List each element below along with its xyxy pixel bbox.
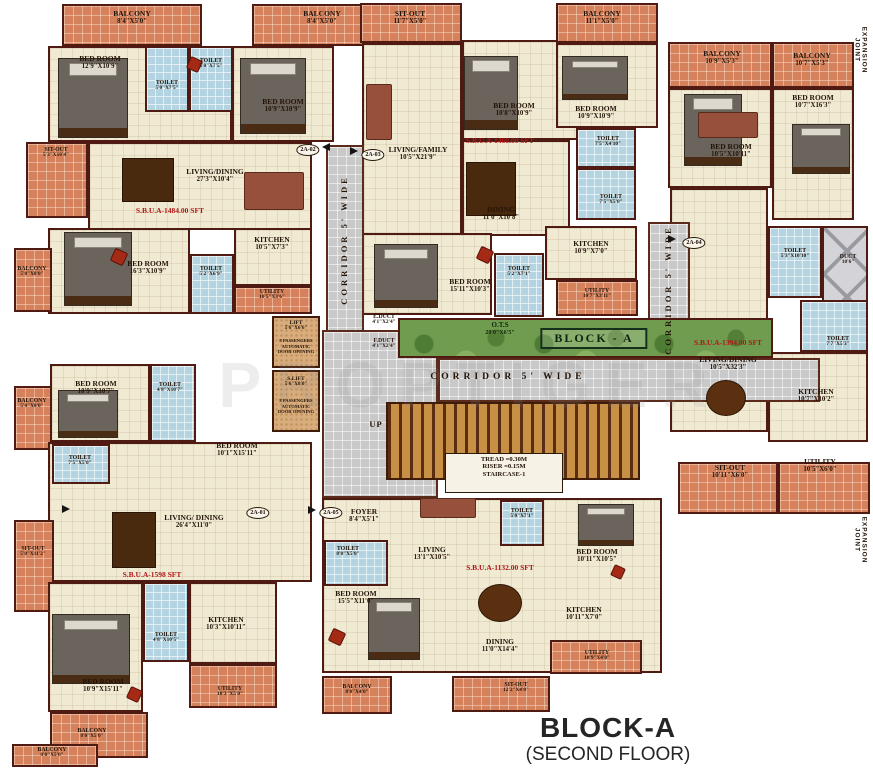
label-bedroom-105x1011: BED ROOM10'5"X10'11" — [710, 143, 751, 159]
label-living-family-2a03-line-2: 10'5"X21'9" — [389, 154, 448, 162]
label-kitchen-2a04: KITCHEN10'7"X10'2" — [798, 388, 835, 404]
label-balcony-2a04-1-line-2: 10'9"X5'3" — [703, 58, 741, 66]
floorplan-block-a: PROPTIGER BLOCK-A (SECOND FLOOR) BALCONY… — [0, 0, 873, 768]
label-utility-2a04: UTILITY10'5"X6'0" — [803, 458, 836, 474]
label-balcony-left-2-line-2: 5'0"X8'0" — [18, 404, 47, 410]
label-bedroom-129x109-line-1: BED ROOM — [79, 55, 120, 63]
label-balcony-bl-2-line-2: 8'0"X5'0" — [38, 753, 67, 759]
label-dining-2a03: DINING11'0"X10'8" — [483, 206, 519, 222]
label-duct-106-line-2: 10'6" — [840, 260, 856, 266]
label-foyer-line-1: FOYER — [349, 508, 379, 516]
label-sitout-122x40-line-2: 12'2"X4'0" — [503, 688, 529, 694]
label-kitchen-2a02: KITCHEN10'5"X7'3" — [254, 236, 289, 252]
label-ots-line-2: 28'0"X6'5" — [485, 330, 514, 337]
label-ots: O.T.S28'0"X6'5" — [485, 322, 514, 337]
label-balcony-bl-1-line-2: 8'0"X5'0" — [78, 734, 107, 740]
label-dining-2a05-line-2: 11'0"X14'4" — [482, 646, 518, 654]
label-stair-info-line-2: RISER =0.15M — [481, 463, 527, 470]
label-balcony-tl-2-line-2: 8'4"X5'0" — [303, 18, 341, 26]
label-dining-2a05-line-1: DINING — [482, 638, 518, 646]
label-dining-2a03-line-1: DINING — [483, 206, 519, 214]
label-kitchen-2a03-line-2: 10'9"X7'0" — [573, 248, 608, 256]
label-toilet-48x105: TOILET4'8"X10'5" — [153, 632, 179, 644]
label-toilet-75x50-c-line-2: 7'5"X5'0" — [599, 200, 622, 206]
label-sitout-1011x60-line-1: SIT-OUT — [712, 464, 748, 472]
label-lift-1: LIFT5'6"X6'6" — [285, 320, 308, 332]
label-sitout-117x50-line-2: 11'7"X5'0" — [394, 18, 427, 26]
label-toilet-50x75-a-line-2: 5'0"X7'5" — [155, 86, 178, 92]
label-sitout-50x112: SIT-OUT5'0"X11'2" — [20, 546, 46, 558]
label-toilet-77x53: TOILET7'7"X5'3" — [826, 336, 849, 348]
label-balcony-tl-1: BALCONY8'4"X5'0" — [113, 10, 151, 26]
zone-toilet-52x71 — [494, 253, 544, 317]
label-toilet-75x50-2a01: TOILET7'5"X5'0" — [68, 455, 91, 467]
entry-arrow-icon — [62, 505, 70, 513]
label-utility-2a04-line-2: 10'5"X6'0" — [803, 466, 836, 474]
label-bedroom-105x1011-line-2: 10'5"X10'11" — [710, 151, 751, 159]
label-toilet-50x75-b-line-2: 5'0"X7'5" — [199, 64, 222, 70]
label-balcony-2a04-2-line-2: 10'7"X5'3" — [793, 60, 831, 68]
label-bedroom-155x110-line-2: 15'5"X11'0" — [335, 598, 376, 606]
unit-badge-2a-02: 2A-02 — [296, 144, 319, 156]
label-foyer-line-2: 8'4"X5'1" — [349, 516, 379, 524]
label-block-a-box-line-1: BLOCK - A — [540, 328, 647, 349]
label-sbua-2a04-line-1: S.B.U.A-1394.00 SFT — [694, 339, 762, 347]
label-sitout-53x104-line-2: 5'3"X10'4" — [43, 153, 69, 159]
label-up-line-1: UP — [369, 420, 382, 430]
label-sitout-50x112-line-2: 5'0"X11'2" — [20, 552, 46, 558]
label-kitchen-2a01: KITCHEN10'3"X10'11" — [206, 616, 246, 632]
zone-balcony-left-2 — [14, 386, 52, 450]
label-expansion-joint-top-line-2: JOINT — [853, 27, 860, 74]
label-living-family-2a03-line-1: LIVING/FAMILY — [389, 146, 448, 154]
label-bedroom-107x163-line-1: BED ROOM — [792, 94, 833, 102]
furniture-round — [478, 584, 522, 622]
furniture-bed — [374, 244, 438, 308]
label-educt: E.DUCT4'1"X2'4" — [372, 314, 395, 326]
label-kitchen-2a01-line-1: KITCHEN — [206, 616, 246, 624]
label-lift-2-sub: 8 PASSENGERSAUTOMATICDOOR OPENING — [278, 398, 314, 415]
label-bedroom-101x1511-line-1: BED ROOM — [216, 442, 257, 450]
label-kitchen-2a04-line-1: KITCHEN — [798, 388, 835, 396]
label-bedroom-109x109-tr-line-1: BED ROOM — [575, 105, 616, 113]
label-bedroom-155x110: BED ROOM15'5"X11'0" — [335, 590, 376, 606]
label-toilet-48x105-line-2: 4'8"X10'5" — [153, 638, 179, 644]
label-balcony-left-1: BALCONY5'0"X8'0" — [18, 266, 47, 278]
drawing-title: BLOCK-A (SECOND FLOOR) — [526, 712, 691, 766]
label-utility-2a03-line-2: 10'7"X3'11" — [583, 294, 611, 300]
label-foyer: FOYER8'4"X5'1" — [349, 508, 379, 524]
label-bedroom-109x109-tr-line-2: 10'9"X10'9" — [575, 113, 616, 121]
furniture-sofa — [366, 84, 392, 140]
label-living-2a02-line-2: 27'3"X10'4" — [186, 176, 244, 184]
label-bedroom-109x1511-line-1: BED ROOM — [82, 678, 123, 686]
label-living-2a04-line-1: LIVING/DINING — [699, 356, 757, 364]
label-sbua-2a01-line-1: S.B.U.A-1598 SFT — [123, 571, 182, 579]
label-sitout-1011x60-line-2: 10'11"X6'0" — [712, 472, 748, 480]
label-lift-2-sub-line-3: DOOR OPENING — [278, 409, 314, 415]
label-bedroom-163x109: BED ROOM16'3"X10'9" — [127, 260, 168, 276]
label-living-2a01-line-1: LIVING/ DINING — [164, 514, 223, 522]
label-bedroom-129x109-line-2: 12'9"X10'9" — [79, 63, 120, 71]
label-toilet-48x107-line-2: 4'8"X10'7" — [157, 388, 183, 394]
label-expansion-joint-top: EXPANSIONJOINT — [853, 27, 868, 74]
label-sbua-1132: S.B.U.A-1132.00 SFT — [466, 564, 534, 572]
label-bedroom-1011x105-line-2: 10'11"X10'5" — [576, 556, 617, 564]
label-bedroom-108x109-line-1: BED ROOM — [493, 102, 534, 110]
label-lift-2-sub-line-1: 8 PASSENGERS — [278, 398, 314, 404]
label-toilet-50x75-a: TOILET5'0"X7'5" — [155, 80, 178, 92]
label-bedroom-109x109-tr: BED ROOM10'9"X10'9" — [575, 105, 616, 121]
label-bedroom-101x1511-line-2: 10'1"X15'11" — [216, 450, 257, 458]
zone-sitout-122x40 — [452, 676, 550, 712]
label-kitchen-2a03: KITCHEN10'9"X7'0" — [573, 240, 608, 256]
label-balcony-tl-1-line-2: 8'4"X5'0" — [113, 18, 151, 26]
label-corridor-left-line-1: CORRIDOR 5' WIDE — [340, 175, 350, 305]
label-stair-info: TREAD =0.30MRISER =0.15MSTAIRCASE-1 — [481, 456, 527, 478]
label-sbua-2a02-line-1: S.B.U.A-1484.00 SFT — [136, 207, 204, 215]
label-lift-1-sub: 8 PASSENGERSAUTOMATICDOOR OPENING — [278, 338, 314, 355]
label-bedroom-108x109: BED ROOM10'8"X10'9" — [493, 102, 534, 118]
label-bedroom-1511x103: BED ROOM15'11"X10'3" — [449, 278, 490, 294]
label-kitchen-2a05-line-1: KITCHEN — [566, 606, 602, 614]
label-toilet-48x107: TOILET4'8"X10'7" — [157, 382, 183, 394]
zone-balcony-left-1 — [14, 248, 52, 312]
furniture-bed — [562, 56, 628, 100]
zone-toilet-50x75-b — [189, 46, 233, 112]
label-dining-2a03-line-2: 11'0"X10'8" — [483, 214, 519, 222]
label-balcony-2a04-2-line-1: BALCONY — [793, 52, 831, 60]
label-sbua-2a04: S.B.U.A-1394.00 SFT — [694, 339, 762, 347]
label-balcony-left-1-line-2: 5'0"X8'0" — [18, 272, 47, 278]
label-ots-line-1: O.T.S — [485, 322, 514, 330]
label-dining-2a05: DINING11'0"X14'4" — [482, 638, 518, 654]
label-balcony-2a04-2: BALCONY10'7"X5'3" — [793, 52, 831, 68]
label-toilet-80x50-line-2: 8'0"X5'0" — [336, 552, 359, 558]
label-sitout-53x104: SIT-OUT5'3"X10'4" — [43, 147, 69, 159]
furniture-bed — [58, 390, 118, 438]
label-balcony-bl-1: BALCONY8'0"X5'0" — [78, 728, 107, 740]
label-bedroom-107x163-line-2: 10'7"X16'3" — [792, 102, 833, 110]
label-stair-info-line-3: STAIRCASE-1 — [481, 471, 527, 478]
furniture-sofa — [420, 498, 476, 518]
label-bedroom-1011x105-line-1: BED ROOM — [576, 548, 617, 556]
label-living-2a05-line-2: 13'1"X10'5" — [414, 554, 451, 562]
label-bedroom-108x109-line-2: 10'8"X10'9" — [493, 110, 534, 118]
label-living-family-2a03: LIVING/FAMILY10'5"X21'9" — [389, 146, 448, 162]
label-utility-2a05: UTILITY10'9"X4'0" — [584, 650, 610, 662]
label-bedroom-163x109-line-2: 16'3"X10'9" — [127, 268, 168, 276]
label-corridor-right-line-1: CORRIDOR 5' WIDE — [664, 225, 674, 355]
label-lift-1-line-2: 5'6"X6'6" — [285, 326, 308, 332]
label-bedroom-109x1511-line-2: 10'9"X15'11" — [82, 686, 123, 694]
label-bedroom-109x109-tl: BED ROOM10'9"X10'9" — [262, 98, 303, 114]
label-bedroom-109x109-tl-line-2: 10'9"X10'9" — [262, 106, 303, 114]
label-utility-2a01: UTILITY10'3"X5'0" — [217, 686, 243, 698]
label-balcony-tl-2-line-1: BALCONY — [303, 10, 341, 18]
label-sbua-1132-line-1: S.B.U.A-1132.00 SFT — [466, 564, 534, 572]
zone-toilet-53x1010 — [768, 226, 822, 298]
label-sbua-2a02: S.B.U.A-1484.00 SFT — [136, 207, 204, 215]
label-expansion-joint-bottom: EXPANSIONJOINT — [853, 517, 868, 564]
label-balcony-2a05-line-2: 8'0"X4'0" — [343, 690, 372, 696]
label-toilet-77x53-line-2: 7'7"X5'3" — [826, 342, 849, 348]
label-balcony-bl-2: BALCONY8'0"X5'0" — [38, 747, 67, 759]
label-bedroom-109x107-line-2: 10'9"X10'7" — [75, 388, 116, 396]
entry-arrow-icon — [308, 506, 316, 514]
furniture-bed — [464, 56, 518, 130]
label-bedroom-109x109-tl-line-1: BED ROOM — [262, 98, 303, 106]
label-educt-line-2: 4'1"X2'4" — [372, 320, 395, 326]
label-balcony-tr-line-1: BALCONY — [583, 10, 621, 18]
label-stair-info-line-1: TREAD =0.30M — [481, 456, 527, 463]
label-balcony-2a04-1-line-1: BALCONY — [703, 50, 741, 58]
label-kitchen-2a03-line-1: KITCHEN — [573, 240, 608, 248]
label-corridor-horizontal-line-1: CORRIDOR 5' WIDE — [430, 372, 585, 383]
furniture-sofa — [244, 172, 304, 210]
label-kitchen-2a04-line-2: 10'7"X10'2" — [798, 396, 835, 404]
zone-toilet-48x105 — [143, 582, 189, 662]
label-sbua-2a03: S.B.U.A-1460.00 SFT — [466, 137, 534, 145]
label-utility-2a05-line-2: 10'9"X4'0" — [584, 656, 610, 662]
furniture-bed — [240, 58, 306, 134]
label-bedroom-109x107: BED ROOM10'9"X10'7" — [75, 380, 116, 396]
label-living-2a04-line-2: 10'5"X32'3" — [699, 364, 757, 372]
label-up: UP — [369, 420, 382, 430]
title-block-name: BLOCK-A — [526, 712, 691, 744]
label-utility-2a02-line-2: 10'5"X3'6" — [259, 295, 285, 301]
label-toilet-75x410: TOILET7'5"X4'10" — [595, 136, 621, 148]
label-balcony-tl-2: BALCONY8'4"X5'0" — [303, 10, 341, 26]
label-kitchen-2a02-line-1: KITCHEN — [254, 236, 289, 244]
furniture-bed — [792, 124, 850, 174]
label-utility-2a04-line-1: UTILITY — [803, 458, 836, 466]
label-kitchen-2a01-line-2: 10'3"X10'11" — [206, 624, 246, 632]
label-bedroom-155x110-line-1: BED ROOM — [335, 590, 376, 598]
zone-toilet-50x71 — [500, 500, 544, 546]
label-toilet-52x71: TOILET5'2"X7'1" — [507, 266, 530, 278]
entry-arrow-icon — [668, 235, 676, 243]
label-fduct-line-2: 4'1"X2'4" — [372, 344, 395, 350]
label-toilet-50x71-line-2: 5'0"X7'1" — [510, 514, 533, 520]
label-living-2a05: LIVING13'1"X10'5" — [414, 546, 451, 562]
label-block-a-box: BLOCK - A — [540, 328, 647, 349]
label-toilet-75x50-2a01-line-2: 7'5"X5'0" — [68, 461, 91, 467]
furniture-round — [706, 380, 746, 416]
label-balcony-left-2: BALCONY5'0"X8'0" — [18, 398, 47, 410]
furniture-tbl — [112, 512, 156, 568]
furniture-sofa — [698, 112, 758, 138]
label-sitout-117x50: SIT-OUT11'7"X5'0" — [394, 10, 427, 26]
label-balcony-tl-1-line-1: BALCONY — [113, 10, 151, 18]
label-corridor-left: CORRIDOR 5' WIDE — [340, 175, 350, 305]
furniture-bed — [52, 614, 130, 684]
label-living-2a04: LIVING/DINING10'5"X32'3" — [699, 356, 757, 372]
label-balcony-tr-line-2: 11'1"X5'0" — [583, 18, 621, 26]
label-toilet-75x410-line-2: 7'5"X4'10" — [595, 142, 621, 148]
zone-toilet-52x69 — [190, 254, 234, 314]
label-expansion-joint-top-line-1: EXPANSION — [860, 27, 867, 74]
label-lift-2-line-2: 5'6"X8'0" — [285, 382, 308, 388]
label-toilet-53x1010-line-2: 5'3"X10'10" — [781, 254, 810, 260]
label-living-2a01-line-2: 26'4"X11'0" — [164, 522, 223, 530]
label-bedroom-105x1011-line-1: BED ROOM — [710, 143, 751, 151]
label-toilet-52x71-line-2: 5'2"X7'1" — [507, 272, 530, 278]
label-fduct: F.DUCT4'1"X2'4" — [372, 338, 395, 350]
label-toilet-53x1010: TOILET5'3"X10'10" — [781, 248, 810, 260]
label-toilet-50x71: TOILET5'0"X7'1" — [510, 508, 533, 520]
label-lift-1-sub-line-1: 8 PASSENGERS — [278, 338, 314, 344]
label-lift-2: S.LIFT5'6"X8'0" — [285, 376, 308, 388]
label-utility-2a01-line-2: 10'3"X5'0" — [217, 692, 243, 698]
label-balcony-tr: BALCONY11'1"X5'0" — [583, 10, 621, 26]
label-bedroom-163x109-line-1: BED ROOM — [127, 260, 168, 268]
label-sbua-2a01: S.B.U.A-1598 SFT — [123, 571, 182, 579]
label-toilet-52x69-line-2: 5'2"X6'9" — [199, 272, 222, 278]
label-corridor-horizontal: CORRIDOR 5' WIDE — [430, 372, 585, 383]
label-corridor-right: CORRIDOR 5' WIDE — [664, 225, 674, 355]
label-living-2a02: LIVING/DINING27'3"X10'4" — [186, 168, 244, 184]
label-kitchen-2a05: KITCHEN10'11"X7'0" — [566, 606, 602, 622]
label-toilet-80x50: TOILET8'0"X5'0" — [336, 546, 359, 558]
label-sitout-1011x60: SIT-OUT10'11"X6'0" — [712, 464, 748, 480]
furniture-bed — [368, 598, 420, 660]
label-toilet-52x69: TOILET5'2"X6'9" — [199, 266, 222, 278]
label-sbua-2a03-line-1: S.B.U.A-1460.00 SFT — [466, 137, 534, 145]
label-bedroom-1511x103-line-1: BED ROOM — [449, 278, 490, 286]
furniture-bed — [64, 232, 132, 306]
furniture-bed — [578, 504, 634, 546]
label-kitchen-2a05-line-2: 10'11"X7'0" — [566, 614, 602, 622]
label-living-2a02-line-1: LIVING/DINING — [186, 168, 244, 176]
label-bedroom-107x163: BED ROOM10'7"X16'3" — [792, 94, 833, 110]
label-bedroom-1011x105: BED ROOM10'11"X10'5" — [576, 548, 617, 564]
label-bedroom-129x109: BED ROOM12'9"X10'9" — [79, 55, 120, 71]
label-bedroom-101x1511: BED ROOM10'1"X15'11" — [216, 442, 257, 458]
label-balcony-2a04-1: BALCONY10'9"X5'3" — [703, 50, 741, 66]
label-duct-106: DUCT10'6" — [840, 254, 856, 266]
label-expansion-joint-bottom-line-2: JOINT — [853, 517, 860, 564]
label-living-2a01: LIVING/ DINING26'4"X11'0" — [164, 514, 223, 530]
label-bedroom-1511x103-line-2: 15'11"X10'3" — [449, 286, 490, 294]
zone-toilet-50x75-a — [145, 46, 189, 112]
entry-arrow-icon — [350, 147, 358, 155]
label-toilet-75x50-c: TOILET7'5"X5'0" — [599, 194, 622, 206]
label-utility-2a02: UTILITY10'5"X3'6" — [259, 289, 285, 301]
label-utility-2a03: UTILITY10'7"X3'11" — [583, 288, 611, 300]
label-balcony-2a05: BALCONY8'0"X4'0" — [343, 684, 372, 696]
label-sitout-117x50-line-1: SIT-OUT — [394, 10, 427, 18]
label-sitout-122x40: SIT-OUT12'2"X4'0" — [503, 682, 529, 694]
label-living-2a05-line-1: LIVING — [414, 546, 451, 554]
label-expansion-joint-bottom-line-1: EXPANSION — [860, 517, 867, 564]
label-bedroom-109x107-line-1: BED ROOM — [75, 380, 116, 388]
zone-toilet-48x107 — [150, 364, 196, 442]
title-floor-name: (SECOND FLOOR) — [526, 744, 691, 766]
label-kitchen-2a02-line-2: 10'5"X7'3" — [254, 244, 289, 252]
label-lift-1-sub-line-3: DOOR OPENING — [278, 349, 314, 355]
label-bedroom-109x1511: BED ROOM10'9"X15'11" — [82, 678, 123, 694]
label-toilet-50x75-b: TOILET5'0"X7'5" — [199, 58, 222, 70]
furniture-tbl — [122, 158, 174, 202]
entry-arrow-icon — [322, 143, 330, 151]
